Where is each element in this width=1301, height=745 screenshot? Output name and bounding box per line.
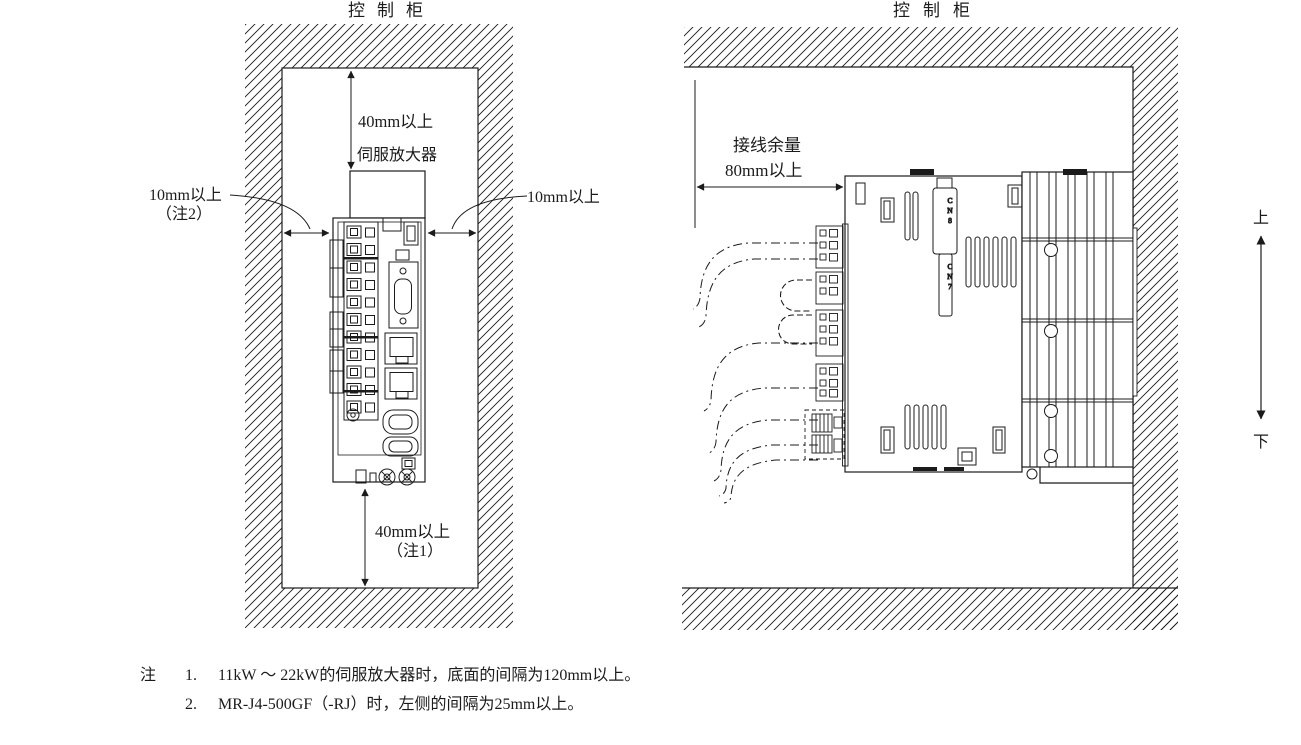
servo-amplifier-front-view [330, 171, 425, 485]
installation-clearance-figure: 控制柜 40mm以上 伺服放大器 10mm以上 （注2） 10mm以上 40mm… [0, 0, 1301, 745]
right-cabinet-title: 控制柜 [893, 1, 970, 20]
cn8-label: CN8 [946, 196, 955, 226]
dim-label-right: 10mm以上 [527, 188, 600, 206]
note-row-1: 注 1. 11kW ～ 22kW的伺服放大器时，底面的间隔为120mm以上。 [140, 661, 640, 690]
left-cabinet-title: 控制柜 [348, 1, 423, 20]
bottom-flange [1040, 467, 1133, 483]
notes-section: 注 1. 11kW ～ 22kW的伺服放大器时，底面的间隔为120mm以上。 2… [140, 661, 640, 719]
top-mounting-tab-2 [1063, 169, 1087, 175]
right-installation-diagram: 接线余量 80mm以上 [682, 1, 1269, 630]
note-2-text: MR-J4-500GF（-RJ）时，左侧的间隔为25mm以上。 [218, 690, 583, 719]
right-cabinet-bottom-wall-hatch [682, 588, 1178, 630]
dim-label-left-line1: 10mm以上 [149, 186, 222, 204]
dim-label-bottom-line1: 40mm以上 [375, 522, 450, 541]
note-2-number: 2. [185, 690, 218, 719]
cn7-label: CN7 [946, 262, 955, 292]
down-label: 下 [1253, 434, 1269, 451]
note-prefix: 注 [140, 661, 185, 690]
up-label: 上 [1253, 209, 1269, 227]
dim-label-left-line2: （注2） [156, 205, 212, 223]
dim-label-top: 40mm以上 [358, 112, 433, 131]
wiring-allowance-label-line2: 80mm以上 [725, 161, 802, 180]
servo-amplifier-label: 伺服放大器 [357, 146, 437, 164]
cable-loops [779, 280, 813, 344]
orientation-indicator: 上 下 [1253, 209, 1269, 451]
wiring-allowance-label-line1: 接线余量 [733, 136, 801, 155]
dim-label-bottom-line2: （注1） [387, 542, 443, 560]
right-cabinet-side-wall-hatch [1133, 67, 1178, 630]
top-mounting-tab [910, 169, 934, 175]
right-cabinet-top-wall-hatch [684, 27, 1178, 67]
note-row-2: 2. MR-J4-500GF（-RJ）时，左侧的间隔为25mm以上。 [140, 690, 640, 719]
note-1-text: 11kW ～ 22kW的伺服放大器时，底面的间隔为120mm以上。 [218, 661, 640, 690]
manual-page: 控制柜 40mm以上 伺服放大器 10mm以上 （注2） 10mm以上 40mm… [0, 0, 1301, 745]
left-installation-diagram: 控制柜 40mm以上 伺服放大器 10mm以上 （注2） 10mm以上 40mm… [149, 1, 600, 628]
front-connector-stack [805, 224, 848, 466]
cable-bundle [693, 243, 818, 503]
mounting-plate-edge [1133, 228, 1137, 396]
note-1-number: 1. [185, 661, 218, 690]
cooling-fins [1022, 172, 1133, 467]
servo-amplifier-side-view: CN8 CN7 [693, 169, 1137, 503]
